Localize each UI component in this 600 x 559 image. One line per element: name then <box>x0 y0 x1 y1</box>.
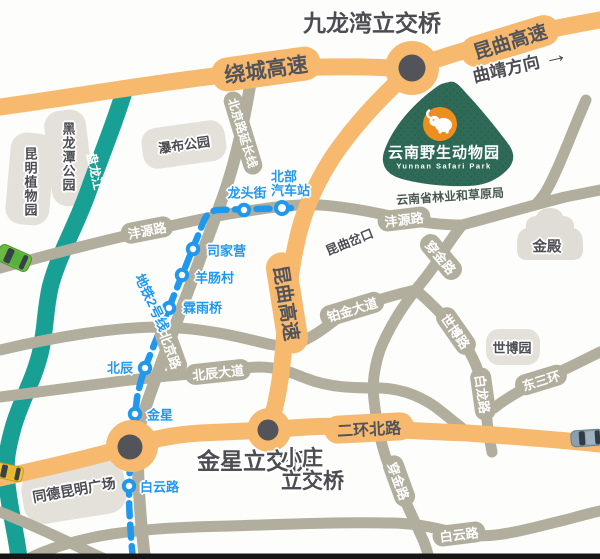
safari-park-name-cn: 云南野生动物园 <box>388 142 500 163</box>
road-label-text: 二环北路 <box>336 414 401 441</box>
station-label-sijiaying: 司家营 <box>207 241 246 260</box>
xiaozhuang-line2: 立交桥 <box>281 471 344 494</box>
metro-station-sijiaying <box>188 244 198 254</box>
bottom-edge-bar <box>0 554 600 559</box>
heilongtan-park-label: 黑龙潭公园 <box>62 122 75 192</box>
botanical-garden-label: 昆明植物园 <box>24 147 37 217</box>
junction-jinxing <box>106 420 158 472</box>
xiaozhuang-line1: 小庄 <box>281 448 344 471</box>
expo-garden-label: 世博园 <box>492 338 531 357</box>
north-bus-line2: 汽车站 <box>271 184 310 198</box>
junction-jiulongwan <box>385 41 439 95</box>
road-label-text: 白龙路 <box>471 373 495 414</box>
road-label-text: 沣源路 <box>383 207 424 231</box>
expwy-erhuan-east <box>269 426 600 444</box>
metro-station-longtoujie <box>239 205 249 215</box>
road-baiyun <box>28 511 600 559</box>
golden-temple-label: 金殿 <box>533 236 562 257</box>
station-label-yangchangcun: 羊肠村 <box>195 268 234 287</box>
expwy-raocheng <box>0 67 404 107</box>
metro-station-beichen <box>140 363 150 373</box>
road-label-erhuan-north: 二环北路 <box>323 412 414 445</box>
metro-station-baiyunlu <box>124 481 134 491</box>
station-label-linyuqiao: 霖雨桥 <box>183 298 222 317</box>
station-label-baiyunlu: 白云路 <box>140 477 179 496</box>
north-bus-station-label: 北部 汽车站 <box>271 170 310 199</box>
road-label-text: 北辰大道 <box>191 360 245 384</box>
road-label-text: 白云路 <box>438 522 479 546</box>
qujing-arrow-icon: → <box>544 53 567 58</box>
kunming-safari-park-map: 绕城高速 昆曲高速 昆曲高速 二环北路 沣源路 沣源路 北京路延长线 北京路 北… <box>0 0 600 559</box>
car-gray <box>570 429 600 447</box>
xiaozhuang-interchange-label: 小庄 立交桥 <box>281 448 344 493</box>
safari-park-logo <box>423 107 457 141</box>
safari-park-name-en: Yunnan Safari Park <box>396 162 491 171</box>
station-label-jinxing: 金星 <box>147 405 173 424</box>
metro-station-north-bus-station <box>276 202 288 214</box>
station-label-beichen: 北辰 <box>107 358 133 377</box>
metro-station-yangchangcun <box>177 270 187 280</box>
station-label-longtoujie: 龙头街 <box>227 183 266 202</box>
jiulongwan-interchange-label: 九龙湾立交桥 <box>303 4 441 38</box>
road-northeast-connector <box>538 100 586 202</box>
metro-station-jinxing <box>130 409 140 419</box>
